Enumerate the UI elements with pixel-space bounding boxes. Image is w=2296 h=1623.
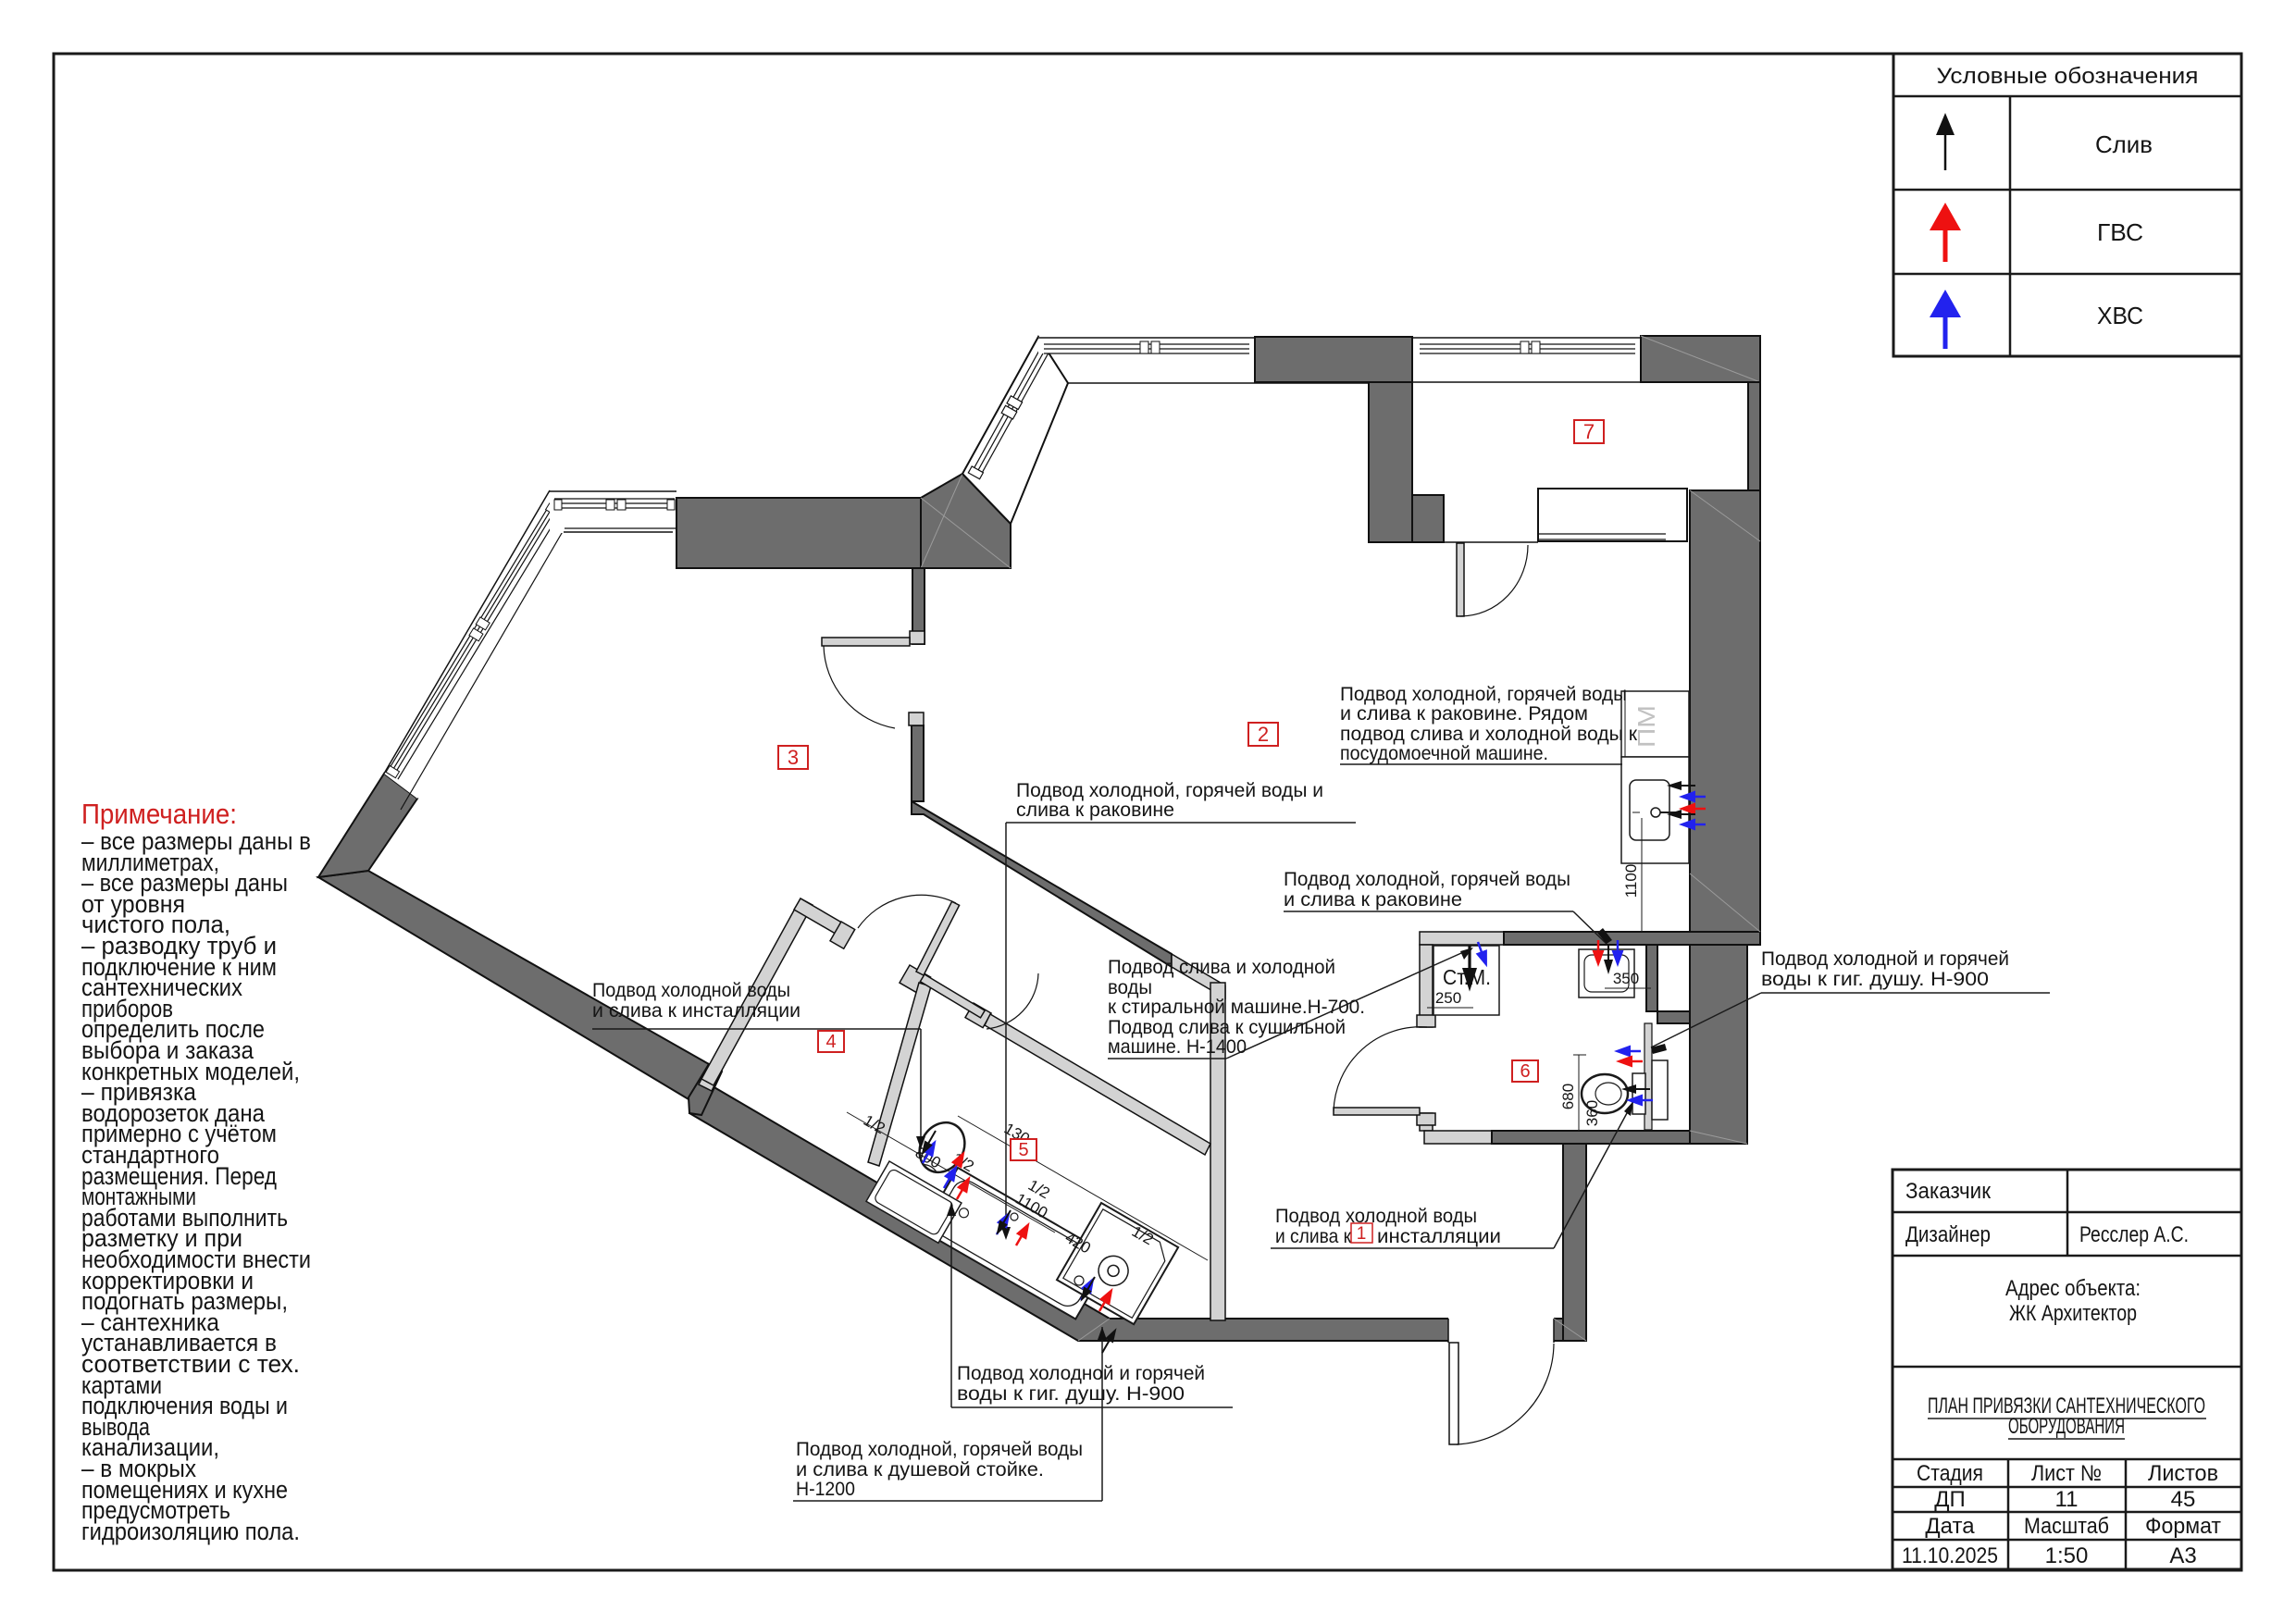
svg-text:360: 360 (1583, 1100, 1601, 1126)
svg-text:слива к раковине: слива к раковине (1016, 799, 1174, 821)
svg-text:и слива к раковине: и слива к раковине (1284, 889, 1462, 911)
svg-text:Н-1200: Н-1200 (796, 1479, 855, 1500)
svg-text:Слив: Слив (2095, 130, 2153, 158)
svg-text:Подвод слива к сушильной: Подвод слива к сушильной (1108, 1017, 1346, 1038)
svg-text:к стиральной машине.Н-700.: к стиральной машине.Н-700. (1108, 997, 1365, 1018)
svg-text:воды к гиг. душу. Н-900: воды к гиг. душу. Н-900 (1761, 969, 1989, 990)
svg-text:и слива к: и слива к (1275, 1226, 1352, 1247)
svg-text:7: 7 (1583, 420, 1595, 443)
svg-text:Дизайнер: Дизайнер (1905, 1222, 1991, 1247)
svg-text:Подвод холодной, горячей воды: Подвод холодной, горячей воды и (1016, 780, 1323, 801)
svg-text:и слива к инсталляции: и слива к инсталляции (592, 1000, 800, 1022)
svg-text:680: 680 (1559, 1084, 1577, 1109)
svg-text:4: 4 (825, 1032, 836, 1052)
svg-text:гидроизоляцию пола.: гидроизоляцию пола. (81, 1518, 300, 1545)
svg-text:инсталляции: инсталляции (1377, 1226, 1501, 1247)
svg-text:350: 350 (1613, 970, 1639, 987)
svg-text:11: 11 (2055, 1487, 2079, 1512)
svg-text:45: 45 (2171, 1487, 2196, 1512)
svg-text:3: 3 (788, 746, 799, 769)
svg-text:ДП: ДП (1934, 1487, 1966, 1512)
svg-text:Стадия: Стадия (1917, 1461, 1983, 1486)
svg-text:Условные обозначения: Условные обозначения (1937, 64, 2199, 89)
svg-text:Дата: Дата (1925, 1514, 1975, 1539)
svg-text:Листов: Листов (2148, 1461, 2218, 1486)
svg-text:и слива к раковине. Рядом: и слива к раковине. Рядом (1340, 703, 1588, 725)
svg-text:и слива к душевой стойке.: и слива к душевой стойке. (796, 1459, 1044, 1481)
svg-text:посудомоечной машине.: посудомоечной машине. (1340, 743, 1548, 764)
svg-text:Адрес объекта:: Адрес объекта: (2005, 1276, 2141, 1301)
svg-text:подвод слива и холодной воды к: подвод слива и холодной воды к (1340, 724, 1638, 745)
svg-text:ЖК Архитектор: ЖК Архитектор (2009, 1301, 2137, 1326)
svg-text:Примечание:: Примечание: (81, 798, 237, 830)
svg-text:Лист №: Лист № (2031, 1461, 2102, 1486)
svg-text:Подвод холодной, горячей воды: Подвод холодной, горячей воды (1340, 684, 1627, 705)
svg-text:ГВС: ГВС (2097, 218, 2143, 246)
svg-text:1100: 1100 (1622, 864, 1640, 898)
svg-text:ХВС: ХВС (2097, 302, 2143, 329)
svg-text:А3: А3 (2169, 1543, 2196, 1568)
svg-text:250: 250 (1435, 989, 1461, 1007)
svg-text:11.10.2025: 11.10.2025 (1902, 1543, 1998, 1568)
svg-text:Заказчик: Заказчик (1905, 1179, 1991, 1204)
svg-text:Ресслер А.С.: Ресслер А.С. (2079, 1222, 2189, 1247)
svg-text:машине. Н-1400: машине. Н-1400 (1108, 1036, 1247, 1058)
svg-text:Масштаб: Масштаб (2024, 1514, 2109, 1539)
svg-text:воды к гиг. душу. Н-900: воды к гиг. душу. Н-900 (957, 1383, 1185, 1405)
svg-text:6: 6 (1520, 1061, 1530, 1082)
svg-text:Подвод холодной, горячей воды: Подвод холодной, горячей воды (796, 1439, 1083, 1460)
svg-text:воды: воды (1108, 977, 1152, 998)
svg-text:Подвод холодной воды: Подвод холодной воды (592, 980, 790, 1001)
svg-text:Формат: Формат (2145, 1514, 2221, 1539)
svg-text:1:50: 1:50 (2045, 1543, 2089, 1568)
svg-text:Подвод слива и холодной: Подвод слива и холодной (1108, 957, 1335, 978)
svg-text:ОБОРУДОВАНИЯ: ОБОРУДОВАНИЯ (2008, 1414, 2125, 1439)
svg-text:Подвод холодной и горячей: Подвод холодной и горячей (957, 1363, 1205, 1384)
svg-text:2: 2 (1258, 723, 1269, 746)
svg-text:5: 5 (1018, 1140, 1028, 1160)
svg-text:1: 1 (1357, 1224, 1367, 1244)
svg-text:Подвод холодной и горячей: Подвод холодной и горячей (1761, 948, 2009, 970)
svg-text:Подвод холодной воды: Подвод холодной воды (1275, 1206, 1477, 1227)
svg-text:Подвод холодной, горячей воды: Подвод холодной, горячей воды (1284, 869, 1570, 890)
